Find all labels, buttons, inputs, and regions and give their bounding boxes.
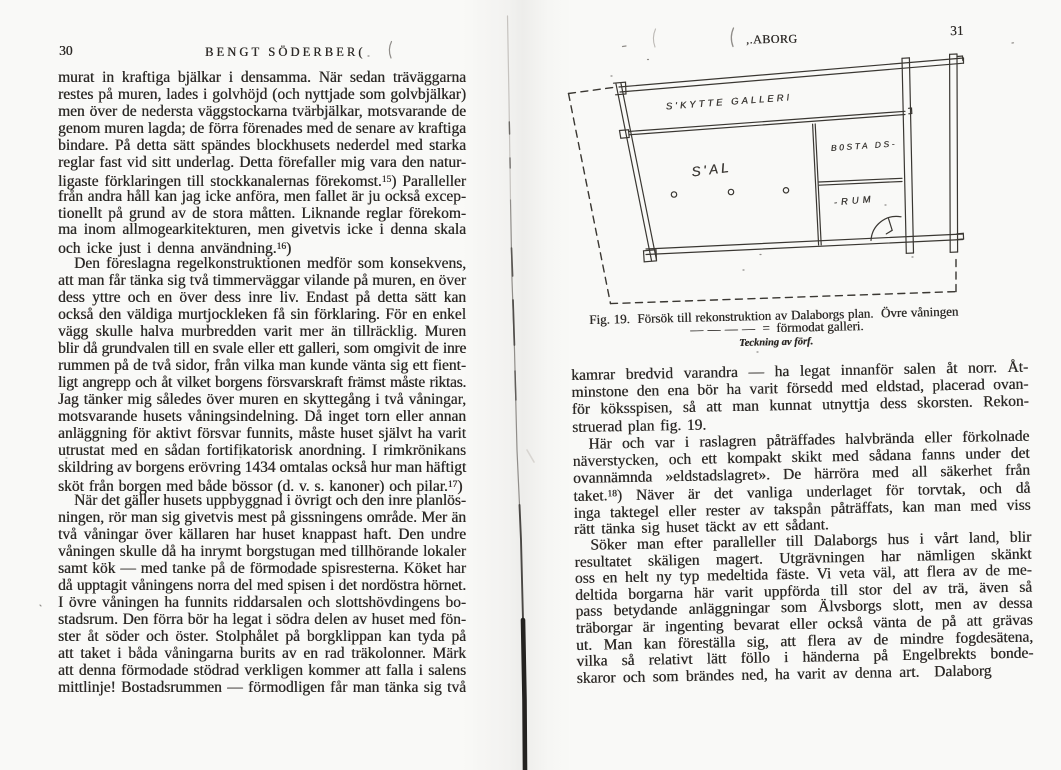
svg-text:S'KYTTE GALLERI: S'KYTTE GALLERI bbox=[665, 92, 792, 112]
svg-text:S'AL: S'AL bbox=[691, 160, 733, 180]
svg-text:-RUM: -RUM bbox=[833, 194, 875, 209]
svg-text:B0STA DS-: B0STA DS- bbox=[830, 138, 897, 153]
